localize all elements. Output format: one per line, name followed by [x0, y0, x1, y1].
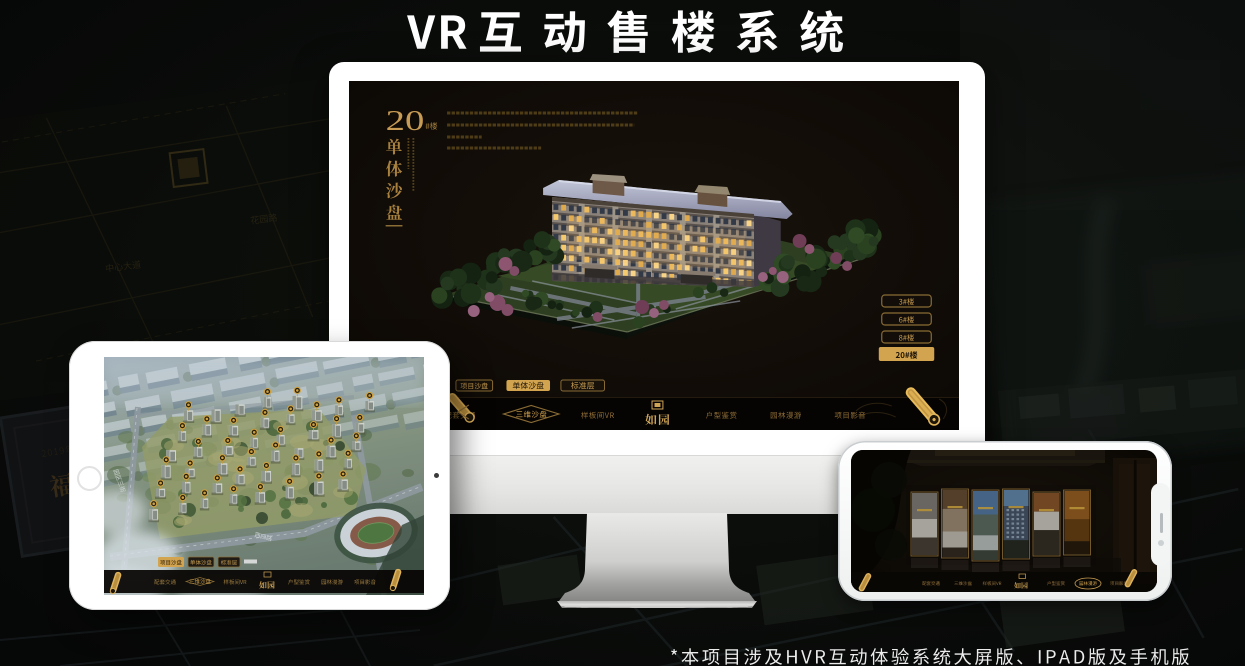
svg-text:20: 20 — [386, 105, 425, 137]
